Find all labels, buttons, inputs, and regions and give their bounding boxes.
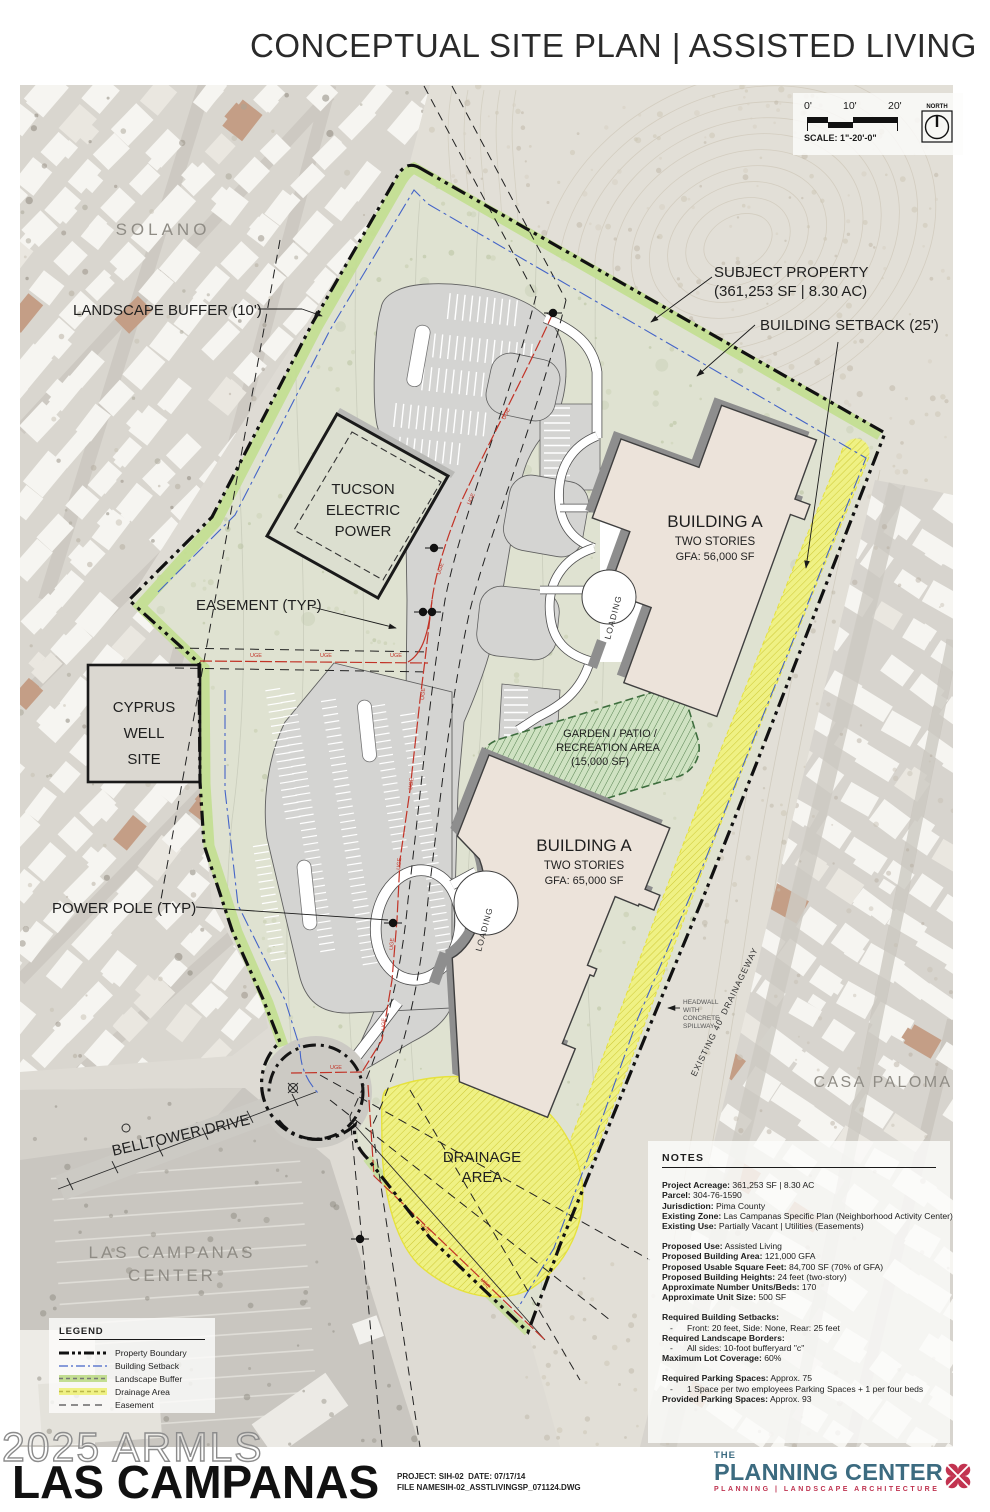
svg-text:TUCSON: TUCSON [331, 481, 394, 498]
svg-text:POWER POLE (TYP): POWER POLE (TYP) [52, 900, 196, 917]
svg-text:UGE: UGE [330, 1065, 342, 1071]
svg-text:TWO STORIES: TWO STORIES [675, 536, 756, 548]
svg-text:UGE: UGE [250, 653, 262, 659]
svg-text:CONCRETE: CONCRETE [683, 1015, 720, 1022]
svg-text:UGE: UGE [381, 1018, 388, 1031]
svg-text:GFA: 65,000 SF: GFA: 65,000 SF [545, 875, 624, 887]
svg-text:UGE: UGE [396, 857, 403, 870]
svg-text:EASEMENT (TYP): EASEMENT (TYP) [196, 597, 322, 614]
svg-text:TWO STORIES: TWO STORIES [544, 860, 625, 872]
svg-text:SUBJECT PROPERTY: SUBJECT PROPERTY [714, 264, 868, 281]
svg-text:LAS CAMPANAS: LAS CAMPANAS [88, 1243, 255, 1262]
svg-text:AREA: AREA [462, 1169, 503, 1186]
svg-text:WELL: WELL [124, 725, 165, 742]
svg-text:ELECTRIC: ELECTRIC [326, 502, 400, 519]
svg-text:WITH: WITH [683, 1007, 700, 1014]
svg-text:HEADWALL: HEADWALL [683, 999, 719, 1006]
svg-text:CASA PALOMA: CASA PALOMA [813, 1074, 952, 1091]
svg-text:GARDEN / PATIO /: GARDEN / PATIO / [563, 728, 658, 740]
svg-text:POWER: POWER [335, 523, 392, 540]
svg-text:NORTH: NORTH [926, 104, 947, 110]
svg-text:RECREATION AREA: RECREATION AREA [556, 742, 660, 754]
svg-text:CYPRUS: CYPRUS [113, 699, 176, 716]
svg-text:UGE: UGE [320, 653, 332, 659]
svg-text:DRAINAGE: DRAINAGE [443, 1149, 521, 1166]
svg-text:(15,000 SF): (15,000 SF) [571, 756, 629, 768]
svg-text:CENTER: CENTER [128, 1266, 216, 1285]
svg-text:LANDSCAPE BUFFER (10'): LANDSCAPE BUFFER (10') [73, 302, 262, 319]
svg-text:BUILDING A: BUILDING A [667, 512, 763, 531]
svg-text:UGE: UGE [389, 938, 396, 951]
svg-text:SITE: SITE [127, 751, 160, 768]
svg-text:SOLANO: SOLANO [116, 220, 211, 239]
svg-text:(361,253 SF | 8.30 AC): (361,253 SF | 8.30 AC) [714, 283, 867, 300]
svg-text:GFA: 56,000 SF: GFA: 56,000 SF [676, 551, 755, 563]
svg-text:UGE: UGE [390, 653, 402, 659]
svg-text:BUILDING A: BUILDING A [536, 836, 632, 855]
svg-text:UGE: UGE [420, 687, 427, 700]
svg-text:SPILLWAY: SPILLWAY [683, 1023, 715, 1030]
svg-text:BUILDING SETBACK (25'): BUILDING SETBACK (25') [760, 317, 939, 334]
